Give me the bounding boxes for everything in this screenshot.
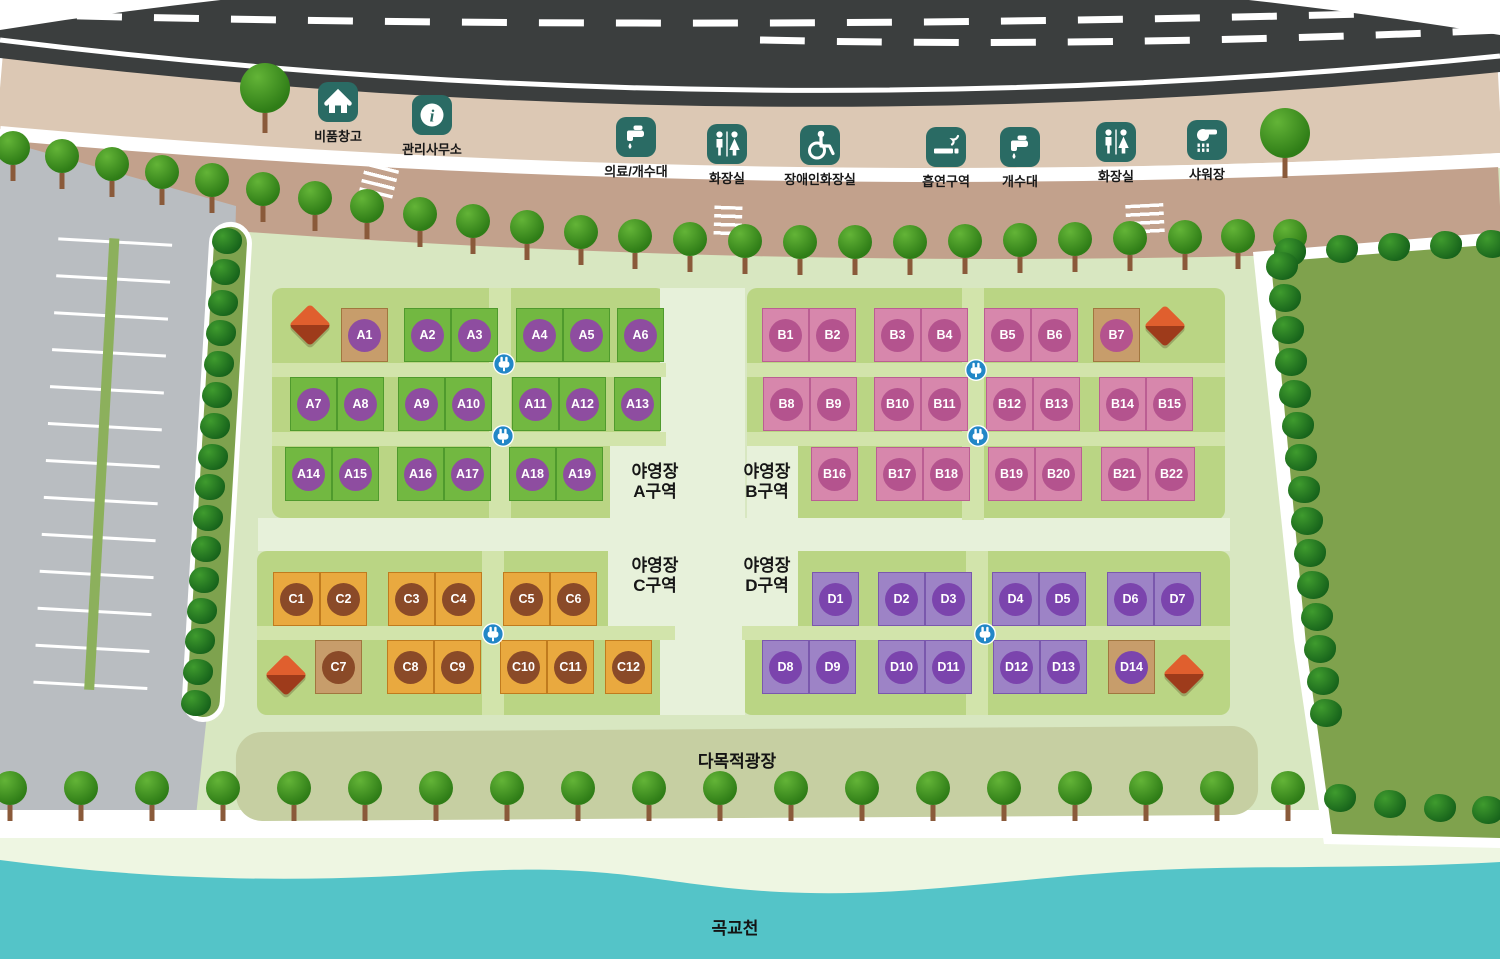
site-number: A15	[339, 458, 372, 491]
campsite-A19[interactable]: A19	[556, 447, 603, 501]
campsite-C5[interactable]: C5	[503, 572, 550, 626]
bush-icon	[1279, 380, 1311, 408]
tree-crown	[64, 771, 98, 805]
tree-trunk	[263, 113, 268, 133]
campsite-C7[interactable]: C7	[315, 640, 362, 694]
tree-trunk	[576, 805, 581, 821]
tree-trunk	[853, 259, 858, 275]
campsite-D12[interactable]: D12	[993, 640, 1040, 694]
restroom-icon	[707, 124, 747, 164]
tree-icon	[350, 189, 384, 239]
tree-icon	[206, 771, 240, 821]
facility-label: 장애인화장실	[760, 169, 880, 188]
bush-icon	[1374, 790, 1406, 818]
campsite-A17[interactable]: A17	[444, 447, 491, 501]
tree-crown	[838, 225, 872, 259]
site-number: A16	[404, 458, 437, 491]
facility-label: 샤워장	[1147, 164, 1267, 183]
campsite-C4[interactable]: C4	[435, 572, 482, 626]
site-number: B21	[1108, 458, 1141, 491]
inner-road	[258, 518, 1230, 551]
tree-trunk	[789, 805, 794, 821]
campsite-D1[interactable]: D1	[812, 572, 859, 626]
campsite-A4[interactable]: A4	[516, 308, 563, 362]
power-outlet-icon	[965, 359, 987, 381]
site-number: B13	[1040, 388, 1073, 421]
zone-label-line1: 야영장	[721, 556, 813, 576]
tree-trunk	[261, 206, 266, 222]
tree-crown	[348, 771, 382, 805]
tree-crown	[0, 131, 30, 165]
restroom-icon	[1096, 122, 1136, 162]
wheelchair-icon	[800, 125, 840, 165]
campsite-D14[interactable]: D14	[1108, 640, 1155, 694]
tree-trunk	[8, 805, 13, 821]
site-number: A11	[519, 388, 552, 421]
campsite-B14[interactable]: B14	[1099, 377, 1146, 431]
campsite-C8[interactable]: C8	[387, 640, 434, 694]
campsite-B22[interactable]: B22	[1148, 447, 1195, 501]
tree-crown	[240, 63, 290, 113]
campsite-B13[interactable]: B13	[1033, 377, 1080, 431]
tree-crown	[632, 771, 666, 805]
tree-icon	[490, 771, 524, 821]
site-number: B7	[1100, 319, 1133, 352]
campsite-B9[interactable]: B9	[810, 377, 857, 431]
site-number: D11	[932, 651, 965, 684]
site-number: B22	[1155, 458, 1188, 491]
tree-trunk	[434, 805, 439, 821]
site-number: C12	[612, 651, 645, 684]
site-number: C11	[554, 651, 587, 684]
site-number: C8	[394, 651, 427, 684]
campsite-B2[interactable]: B2	[809, 308, 856, 362]
tree-icon	[145, 155, 179, 205]
campsite-D10[interactable]: D10	[878, 640, 925, 694]
campsite-A12[interactable]: A12	[559, 377, 606, 431]
tree-icon	[510, 210, 544, 260]
campsite-C1[interactable]: C1	[273, 572, 320, 626]
bush-icon	[208, 290, 238, 316]
bush-icon	[1291, 507, 1323, 535]
tree-trunk	[505, 805, 510, 821]
tree-crown	[916, 771, 950, 805]
campsite-A13[interactable]: A13	[614, 377, 661, 431]
tree-icon	[1113, 221, 1147, 271]
campsite-B11[interactable]: B11	[921, 377, 968, 431]
zone-label-line1: 야영장	[609, 462, 701, 482]
tree-trunk	[110, 181, 115, 197]
tree-trunk	[1073, 256, 1078, 272]
campsite-D7[interactable]: D7	[1154, 572, 1201, 626]
tree-trunk	[365, 223, 370, 239]
power-outlet-icon	[492, 425, 514, 447]
site-number: B5	[991, 319, 1024, 352]
site-number: A18	[516, 458, 549, 491]
site-number: A4	[523, 319, 556, 352]
campsite-D13[interactable]: D13	[1040, 640, 1087, 694]
tree-crown	[1129, 771, 1163, 805]
site-number: D6	[1114, 583, 1147, 616]
campsite-B19[interactable]: B19	[988, 447, 1035, 501]
site-number: B10	[881, 388, 914, 421]
campsite-D6[interactable]: D6	[1107, 572, 1154, 626]
tree-icon	[1003, 223, 1037, 273]
tree-trunk	[1215, 805, 1220, 821]
campsite-B1[interactable]: B1	[762, 308, 809, 362]
site-number: B6	[1038, 319, 1071, 352]
campsite-C6[interactable]: C6	[550, 572, 597, 626]
bush-icon	[1288, 476, 1320, 504]
campsite-A6[interactable]: A6	[617, 308, 664, 362]
campsite-B16[interactable]: B16	[811, 447, 858, 501]
bush-icon	[1304, 635, 1336, 663]
plaza-label: 다목적광장	[657, 747, 817, 772]
tree-trunk	[688, 256, 693, 272]
campsite-B7[interactable]: B7	[1093, 308, 1140, 362]
tree-crown	[45, 139, 79, 173]
zone-label-C: 야영장C구역	[609, 556, 701, 597]
tree-trunk	[1002, 805, 1007, 821]
site-number: D8	[769, 651, 802, 684]
bush-icon	[183, 659, 213, 685]
power-outlet-icon	[974, 623, 996, 645]
bush-icon	[1472, 796, 1500, 824]
tree-trunk	[150, 805, 155, 821]
tree-crown	[673, 222, 707, 256]
tree-crown	[1271, 771, 1305, 805]
tree-crown	[893, 225, 927, 259]
site-number: C7	[322, 651, 355, 684]
tree-icon	[703, 771, 737, 821]
tree-icon	[564, 215, 598, 265]
tree-trunk	[221, 805, 226, 821]
tree-trunk	[931, 805, 936, 821]
site-number: D7	[1161, 583, 1194, 616]
site-number: B19	[995, 458, 1028, 491]
tree-icon	[1260, 108, 1310, 178]
tree-icon	[728, 224, 762, 274]
campsite-C12[interactable]: C12	[605, 640, 652, 694]
bush-icon	[189, 567, 219, 593]
zone-label-line1: 야영장	[609, 556, 701, 576]
site-number: A7	[297, 388, 330, 421]
site-number: B16	[818, 458, 851, 491]
tree-trunk	[1236, 253, 1241, 269]
tree-crown	[1113, 221, 1147, 255]
site-number: D9	[816, 651, 849, 684]
campsite-A15[interactable]: A15	[332, 447, 379, 501]
power-outlet-icon	[493, 353, 515, 375]
tree-icon	[561, 771, 595, 821]
faucet-icon	[1000, 127, 1040, 167]
tree-trunk	[418, 231, 423, 247]
site-number: A5	[570, 319, 603, 352]
tree-icon	[845, 771, 879, 821]
site-number: B15	[1153, 388, 1186, 421]
campsite-B10[interactable]: B10	[874, 377, 921, 431]
campsite-A3[interactable]: A3	[451, 308, 498, 362]
tree-crown	[403, 197, 437, 231]
tree-crown	[195, 163, 229, 197]
tree-trunk	[292, 805, 297, 821]
tree-trunk	[79, 805, 84, 821]
campsite-D5[interactable]: D5	[1039, 572, 1086, 626]
zone-label-line2: C구역	[609, 576, 701, 596]
bush-icon	[1266, 252, 1298, 280]
campsite-D4[interactable]: D4	[992, 572, 1039, 626]
tree-crown	[703, 771, 737, 805]
campsite-D9[interactable]: D9	[809, 640, 856, 694]
campsite-B5[interactable]: B5	[984, 308, 1031, 362]
tree-icon	[1129, 771, 1163, 821]
facility-label: 관리사무소	[372, 139, 492, 158]
tree-trunk	[1018, 257, 1023, 273]
tree-icon	[246, 172, 280, 222]
site-number: C2	[327, 583, 360, 616]
site-number: A8	[344, 388, 377, 421]
bush-icon	[1430, 231, 1462, 259]
zone-label-D: 야영장D구역	[721, 556, 813, 597]
campsite-A10[interactable]: A10	[445, 377, 492, 431]
tree-icon	[95, 147, 129, 197]
tree-crown	[95, 147, 129, 181]
tree-trunk	[1183, 254, 1188, 270]
tree-trunk	[718, 805, 723, 821]
zone-label-line2: B구역	[721, 482, 813, 502]
tree-icon	[277, 771, 311, 821]
campsite-D11[interactable]: D11	[925, 640, 972, 694]
campsite-B6[interactable]: B6	[1031, 308, 1078, 362]
campsite-B8[interactable]: B8	[763, 377, 810, 431]
site-lane	[257, 626, 675, 640]
campsite-A1[interactable]: A1	[341, 308, 388, 362]
campsite-C10[interactable]: C10	[500, 640, 547, 694]
tree-icon	[298, 181, 332, 231]
tree-crown	[845, 771, 879, 805]
campsite-B12[interactable]: B12	[986, 377, 1033, 431]
tree-icon	[64, 771, 98, 821]
campsite-B18[interactable]: B18	[923, 447, 970, 501]
tree-icon	[419, 771, 453, 821]
tree-crown	[350, 189, 384, 223]
site-number: B2	[816, 319, 849, 352]
tree-icon	[673, 222, 707, 272]
site-number: C6	[557, 583, 590, 616]
campsite-D2[interactable]: D2	[878, 572, 925, 626]
site-number: C10	[507, 651, 540, 684]
site-lane	[272, 363, 666, 377]
river-label: 곡교천	[660, 914, 810, 939]
tree-crown	[1221, 219, 1255, 253]
facility-storage: 비품창고	[318, 82, 358, 122]
tree-icon	[987, 771, 1021, 821]
bush-icon	[1275, 348, 1307, 376]
tree-crown	[419, 771, 453, 805]
cigarette-icon	[926, 127, 966, 167]
campsite-A16[interactable]: A16	[397, 447, 444, 501]
tree-crown	[1260, 108, 1310, 158]
tree-icon	[240, 63, 290, 133]
bush-icon	[1294, 539, 1326, 567]
info-icon: i	[412, 95, 452, 135]
facility-sink: 개수대	[1000, 127, 1040, 167]
campsite-C2[interactable]: C2	[320, 572, 367, 626]
campsite-B20[interactable]: B20	[1035, 447, 1082, 501]
site-number: B14	[1106, 388, 1139, 421]
tree-trunk	[210, 197, 215, 213]
campsite-C9[interactable]: C9	[434, 640, 481, 694]
site-number: A10	[452, 388, 485, 421]
bush-icon	[1285, 444, 1317, 472]
campsite-D3[interactable]: D3	[925, 572, 972, 626]
tree-trunk	[579, 249, 584, 265]
site-number: C5	[510, 583, 543, 616]
tree-icon	[618, 219, 652, 269]
campsite-B15[interactable]: B15	[1146, 377, 1193, 431]
site-number: B4	[928, 319, 961, 352]
bush-icon	[1424, 794, 1456, 822]
tree-trunk	[860, 805, 865, 821]
site-number: A3	[458, 319, 491, 352]
campsite-A7[interactable]: A7	[290, 377, 337, 431]
bush-icon	[210, 259, 240, 285]
bush-icon	[202, 382, 232, 408]
tree-crown	[728, 224, 762, 258]
campsite-A11[interactable]: A11	[512, 377, 559, 431]
site-number: A2	[411, 319, 444, 352]
tree-crown	[145, 155, 179, 189]
site-number: B20	[1042, 458, 1075, 491]
tree-trunk	[633, 253, 638, 269]
site-number: A19	[563, 458, 596, 491]
bush-icon	[1310, 699, 1342, 727]
tree-crown	[135, 771, 169, 805]
campsite-C3[interactable]: C3	[388, 572, 435, 626]
power-outlet-icon	[482, 623, 504, 645]
site-number: B17	[883, 458, 916, 491]
tree-trunk	[908, 259, 913, 275]
bush-icon	[1378, 233, 1410, 261]
tree-crown	[564, 215, 598, 249]
site-number: D14	[1115, 651, 1148, 684]
zone-label-line2: D구역	[721, 576, 813, 596]
site-number: D10	[885, 651, 918, 684]
campsite-A14[interactable]: A14	[285, 447, 332, 501]
campsite-B4[interactable]: B4	[921, 308, 968, 362]
svg-text:i: i	[430, 107, 435, 126]
tree-icon	[195, 163, 229, 213]
tree-trunk	[647, 805, 652, 821]
tree-crown	[246, 172, 280, 206]
shower-icon	[1187, 120, 1227, 160]
tree-icon	[948, 224, 982, 274]
tree-crown	[783, 225, 817, 259]
tree-trunk	[963, 258, 968, 274]
bush-icon	[204, 351, 234, 377]
site-number: B11	[928, 388, 961, 421]
plaza	[236, 726, 1259, 821]
facility-smoking-area: 흡연구역	[926, 127, 966, 167]
tree-icon	[1058, 771, 1092, 821]
site-number: D13	[1047, 651, 1080, 684]
site-number: C3	[395, 583, 428, 616]
tree-icon	[632, 771, 666, 821]
site-number: A12	[566, 388, 599, 421]
tree-crown	[456, 204, 490, 238]
bush-icon	[1269, 284, 1301, 312]
campsite-B17[interactable]: B17	[876, 447, 923, 501]
site-number: B9	[817, 388, 850, 421]
campground-map: 다목적광장 곡교천 야영장A구역A1A2A3A4A5A6A7A8A9A10A11…	[0, 0, 1500, 959]
site-number: D1	[819, 583, 852, 616]
bush-icon	[1282, 412, 1314, 440]
tree-trunk	[743, 258, 748, 274]
bush-icon	[181, 690, 211, 716]
bush-icon	[1476, 230, 1500, 258]
bush-icon	[191, 536, 221, 562]
tree-trunk	[798, 259, 803, 275]
facility-medical-sink: 의료/개수대	[616, 117, 656, 157]
campsite-C11[interactable]: C11	[547, 640, 594, 694]
tree-crown	[948, 224, 982, 258]
bush-icon	[1307, 667, 1339, 695]
site-number: B1	[769, 319, 802, 352]
site-number: B18	[930, 458, 963, 491]
bush-icon	[1301, 603, 1333, 631]
tree-icon	[1200, 771, 1234, 821]
zone-label-line2: A구역	[609, 482, 701, 502]
campsite-B21[interactable]: B21	[1101, 447, 1148, 501]
tree-icon	[45, 139, 79, 189]
home-icon	[318, 82, 358, 122]
site-number: D4	[999, 583, 1032, 616]
tree-icon	[1058, 222, 1092, 272]
site-number: C4	[442, 583, 475, 616]
tree-trunk	[1283, 158, 1288, 178]
tree-icon	[893, 225, 927, 275]
campsite-A2[interactable]: A2	[404, 308, 451, 362]
campsite-A8[interactable]: A8	[337, 377, 384, 431]
tree-icon	[0, 131, 30, 181]
tree-crown	[774, 771, 808, 805]
facility-toilet-west: 화장실	[707, 124, 747, 164]
site-number: D5	[1046, 583, 1079, 616]
tree-trunk	[1144, 805, 1149, 821]
tree-trunk	[160, 189, 165, 205]
faucet-icon	[616, 117, 656, 157]
tree-crown	[277, 771, 311, 805]
campsite-B3[interactable]: B3	[874, 308, 921, 362]
tree-crown	[1003, 223, 1037, 257]
tree-icon	[135, 771, 169, 821]
campsite-A9[interactable]: A9	[398, 377, 445, 431]
campsite-D8[interactable]: D8	[762, 640, 809, 694]
tree-icon	[403, 197, 437, 247]
tree-crown	[987, 771, 1021, 805]
site-number: C9	[441, 651, 474, 684]
tree-icon	[838, 225, 872, 275]
tree-trunk	[1128, 255, 1133, 271]
site-number: A1	[348, 319, 381, 352]
campsite-A5[interactable]: A5	[563, 308, 610, 362]
site-number: A13	[621, 388, 654, 421]
tree-crown	[561, 771, 595, 805]
site-number: D3	[932, 583, 965, 616]
tree-trunk	[363, 805, 368, 821]
bush-icon	[1326, 235, 1358, 263]
campsite-A18[interactable]: A18	[509, 447, 556, 501]
